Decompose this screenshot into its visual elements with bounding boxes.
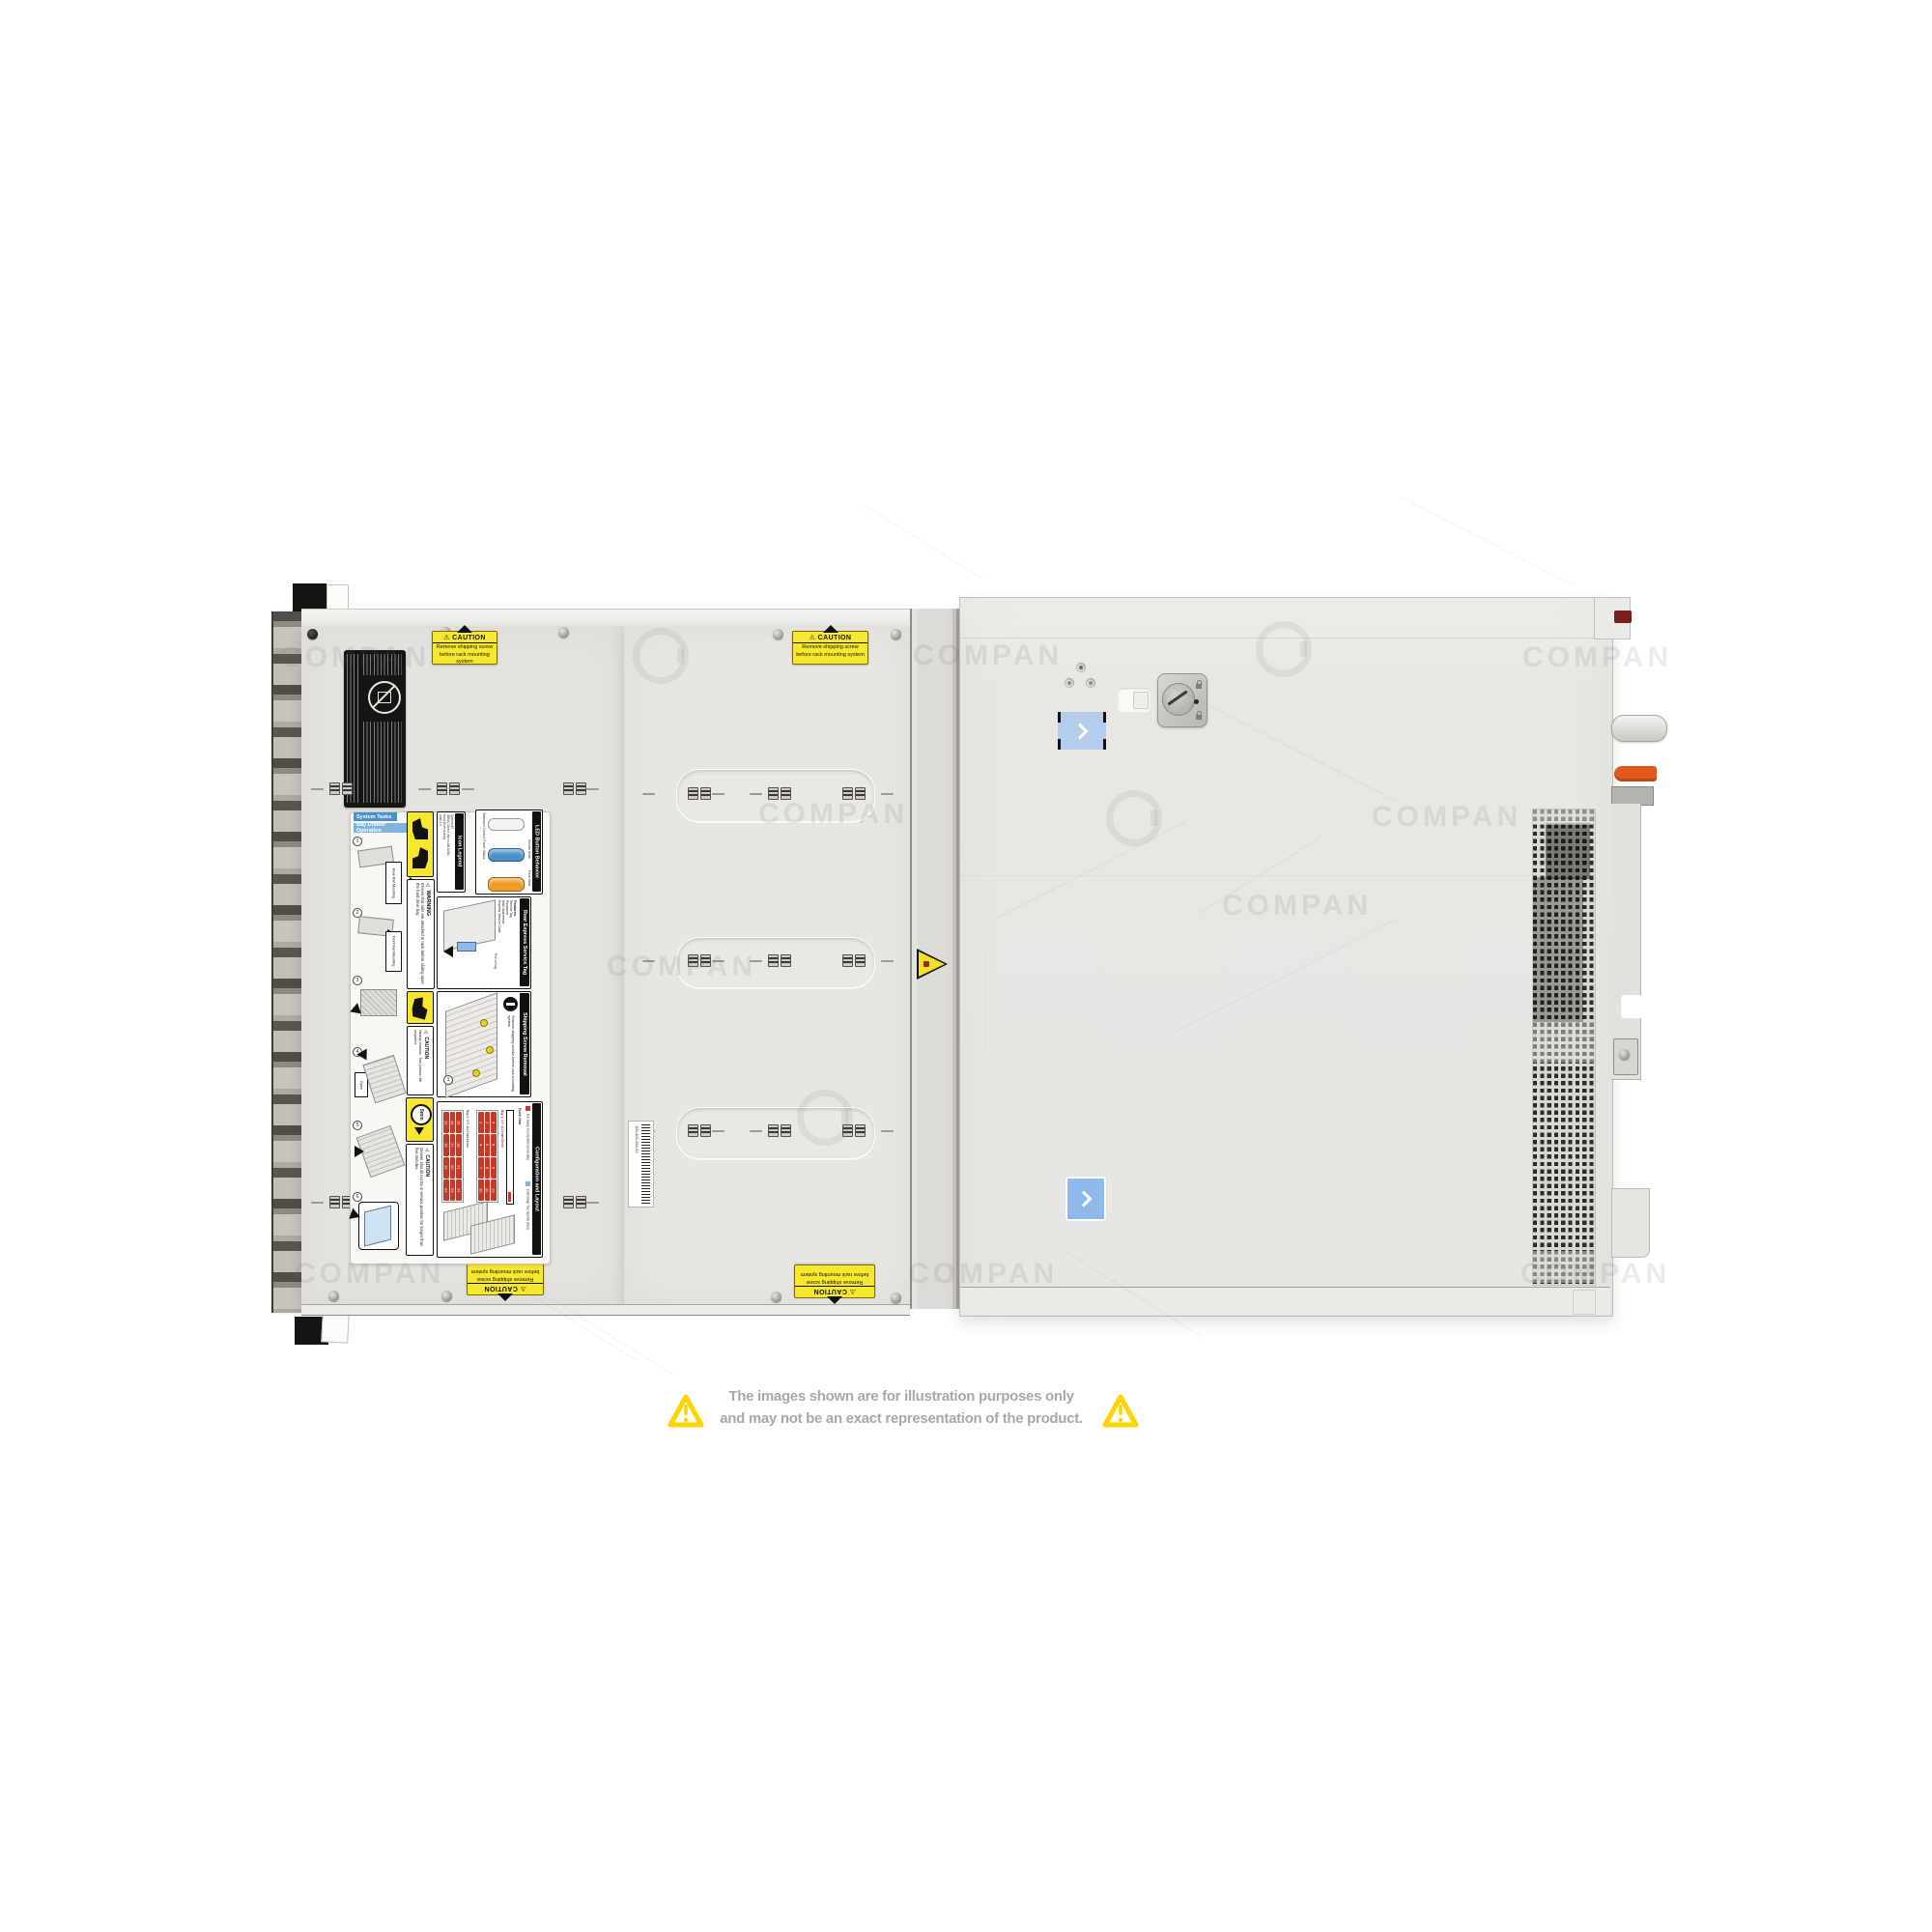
sticker-notch	[497, 1293, 513, 1301]
lid-bottom-strip	[960, 1287, 1610, 1315]
vent-mark	[462, 788, 474, 790]
chevron-right-icon	[1076, 1191, 1093, 1207]
lid-latch-dial	[1162, 683, 1195, 716]
sticker-notch	[827, 1296, 842, 1304]
warning-text: Ensure that rails are attached to rack b…	[415, 883, 425, 985]
repeat-item: 16	[443, 1134, 449, 1155]
hinge-warning-marks	[923, 961, 929, 967]
barcode-label: 100-400-294-03	[628, 1121, 654, 1207]
caution-line: before rack mounting system	[433, 651, 497, 666]
stop-icon	[503, 997, 518, 1011]
rack-ear-top-left	[293, 583, 327, 611]
shipping-screw-box: Shipping Screw Removal Remove shipping s…	[437, 991, 531, 1097]
repeat-item: 24	[456, 1179, 462, 1201]
repeat-item: 21	[456, 1157, 462, 1179]
touchpoint-corner-mark	[1103, 739, 1106, 750]
led-bar-blank	[488, 818, 525, 831]
repeat-item: 22	[443, 1179, 449, 1201]
label-step-2: 2 Front Rail Mounting	[353, 908, 403, 972]
screw	[891, 1293, 901, 1303]
label-step-1: 1 Rear Rail Mounting	[353, 837, 403, 904]
step-number: 1	[443, 1075, 453, 1085]
step-number: 1	[353, 837, 362, 846]
chevron-right-icon	[1072, 723, 1089, 739]
caution-line: Remove shipping screw	[795, 1278, 874, 1286]
repeat-item: MAC Addresses	[501, 900, 505, 985]
caution-line: before rack mounting system	[468, 1267, 543, 1275]
disclaimer-line-2: and may not be an exact representation o…	[660, 1407, 1143, 1430]
chassis-top-rail	[301, 609, 956, 628]
arrow	[443, 946, 453, 957]
screw	[328, 1291, 339, 1301]
caution-lift-text: Heavy chassis. Two person lift required.	[413, 1030, 423, 1092]
repeat-item: 1	[478, 1112, 484, 1133]
touchpoint-corner-mark	[1103, 712, 1106, 723]
shipping-screw-dot	[486, 1046, 494, 1054]
repeat-item: 5	[485, 1134, 491, 1155]
vent-mark	[750, 793, 762, 795]
shipping-header: Shipping Screw Removal	[520, 993, 529, 1094]
vent-mark	[586, 1202, 599, 1204]
watermark-text: COMPAN	[1372, 801, 1521, 834]
lock-icon	[1196, 715, 1202, 720]
repeat-item: 17	[450, 1134, 456, 1155]
led-behavior-header: LED Button Behavior	[532, 811, 541, 892]
tip-hazard-pictogram	[407, 811, 434, 877]
bay2-label: Bay 2: 3.5" x12 Hard Drives	[463, 1110, 469, 1199]
step-label: Front Rail Mounting	[385, 931, 402, 972]
service-tag-pull	[457, 942, 476, 952]
vent-mark	[881, 960, 894, 962]
vent-mark	[311, 1202, 324, 1204]
vent-mark	[418, 788, 431, 790]
vent-mark	[329, 782, 353, 795]
caution-line: Remove shipping screw	[468, 1275, 543, 1283]
service-label-tab-system-tasks: System Tasks	[354, 812, 397, 821]
vent-mark	[688, 787, 711, 800]
barcode-stripes	[641, 1124, 650, 1204]
screw	[891, 629, 901, 639]
led-normal-label: Normal State	[525, 839, 531, 868]
timer-box: 5min	[406, 1097, 434, 1142]
vent-mark	[311, 788, 324, 790]
front-panel-outline	[506, 1110, 514, 1205]
front-view-label: Front View	[515, 1108, 522, 1141]
touchpoint-sticker-upper	[1058, 712, 1106, 750]
vent-mark	[586, 788, 599, 790]
lid-hole-top	[1076, 663, 1086, 672]
repeat-item: 2	[485, 1112, 491, 1133]
shipping-screw-dot	[472, 1069, 480, 1077]
watermark-logo-icon	[633, 628, 689, 684]
repeat-item: 10	[478, 1179, 484, 1201]
vent-mark	[712, 793, 724, 795]
screw	[558, 627, 569, 638]
repeat-item: Password	[505, 900, 509, 985]
vent-mark	[881, 793, 894, 795]
cover-right-lid	[959, 597, 1613, 1317]
watermark-logo-icon	[1106, 790, 1162, 846]
label-step-3: 3	[353, 976, 403, 1043]
vent-mark	[842, 954, 866, 967]
rear-tag-header: Rear Express Service Tag	[520, 898, 529, 986]
touchpoint-corner-mark	[1058, 739, 1061, 750]
repeat-item: 4	[478, 1134, 484, 1155]
vent-shade-light	[1533, 810, 1593, 825]
icon-legend-items: System IDiDRAC Direct (Micro-AB USB)Hard…	[440, 814, 454, 890]
step-number: 3	[353, 976, 362, 985]
screw	[771, 1292, 781, 1302]
rear-foot	[1611, 1188, 1650, 1258]
step-label: Rear Rail Mounting	[385, 862, 402, 904]
caution-line: Remove shipping screw	[433, 643, 497, 651]
caution-sticker-top-left: ⚠ CAUTION Remove shipping screw before r…	[432, 631, 497, 665]
repeat-item: 3	[491, 1112, 497, 1133]
watermark-text: COMPAN	[295, 1258, 444, 1291]
caution-title: ⚠ CAUTION	[793, 632, 867, 643]
repeat-item: iDRAC Direct (Micro-AB USB)	[446, 814, 450, 890]
pinch-hazard-pictogram	[407, 991, 434, 1024]
caution-drawer-text: Drawer should not be in service position…	[414, 1148, 424, 1252]
caution-line: before rack mounting system	[795, 1270, 874, 1278]
watermark-text: COMPAN	[607, 951, 756, 983]
lid-fold-line-mid	[960, 875, 1530, 876]
led-fault-label: Fault State	[525, 870, 531, 894]
configuration-box: Configuration and Layout Hot Swap Touchp…	[437, 1101, 543, 1258]
service-label-tab-bay-drawer: Bay Drawer Operation	[354, 823, 409, 833]
repeat-item: 11	[485, 1179, 491, 1201]
rear-tag-features: Service TagPasswordMAC AddressesExpress …	[497, 900, 513, 985]
repeat-item: Service Tag	[509, 900, 513, 985]
rear-metal-latch	[1611, 786, 1654, 806]
repeat-item: 6	[491, 1134, 497, 1155]
repeat-item: 15	[456, 1112, 462, 1133]
rear-notch	[1621, 995, 1642, 1018]
chassis-bottom-rail	[301, 1304, 910, 1316]
barcode-number: 100-400-294-03	[631, 1125, 639, 1203]
watermark-text: COMPAN	[913, 639, 1063, 672]
watermark-text: COMPAN	[908, 1258, 1058, 1291]
rack-ear-bottom-tag	[321, 1313, 350, 1343]
rear-tag-features-label: Features:	[513, 900, 517, 985]
timer-label: 5min	[418, 1109, 424, 1121]
caution-sticker-bottom-middle: ⚠ CAUTION Remove shipping screw before r…	[794, 1264, 875, 1298]
screw	[307, 629, 318, 639]
warning-title: ⚠ WARNING	[425, 883, 431, 985]
repeat-item: System ID	[450, 814, 454, 890]
repeat-item: 7	[478, 1157, 484, 1179]
repeat-item: USB 2.0	[439, 814, 442, 890]
step-number: 5	[353, 1121, 362, 1130]
lid-release-slider-knob	[1133, 692, 1149, 709]
legend-cold: Cold Swap Touchpoints (blue)	[526, 1189, 530, 1230]
icon-legend-header: Icon Legend	[455, 813, 464, 890]
regulatory-text-lines	[347, 654, 360, 803]
vent-mark	[768, 1124, 791, 1137]
rear-red-latch	[1614, 611, 1632, 623]
label-step-6: 6	[353, 1192, 403, 1254]
led-bar-fault	[488, 877, 525, 892]
bay1-label: Bay 1: 3.5" x12 Hard Drives	[497, 1110, 504, 1199]
vent-shade-dark	[1533, 877, 1583, 1022]
step-number: 6	[353, 1192, 362, 1202]
vent-mark	[881, 1130, 894, 1132]
watermark-text: COMPAN	[1522, 641, 1672, 674]
watermark-text: COMPAN	[758, 798, 908, 831]
rear-thumbscrew	[1619, 1049, 1630, 1060]
shipping-text: Remove shipping screws before rack mount…	[501, 1015, 515, 1093]
shipping-illustration	[445, 992, 497, 1098]
unlock-icon	[1196, 684, 1202, 689]
caution-sticker-top-middle: ⚠ CAUTION Remove shipping screw before r…	[792, 631, 868, 665]
caution-drawer-box: ⚠ CAUTION Drawer should not be in servic…	[406, 1144, 434, 1256]
watermark-logo-icon	[797, 1090, 853, 1146]
lid-hole-right	[1086, 678, 1095, 688]
sticker-notch	[457, 625, 472, 633]
shipping-screw-dot	[480, 1019, 488, 1027]
caution-lift-title: ⚠ CAUTION	[423, 1030, 429, 1092]
vent-mark	[750, 1130, 762, 1132]
vent-mark	[768, 954, 791, 967]
repeat-item: 18	[456, 1134, 462, 1155]
rear-orange-lever	[1614, 766, 1657, 781]
regulatory-text-lines	[363, 722, 402, 803]
vent-mark	[563, 782, 586, 795]
repeat-item: 20	[450, 1157, 456, 1179]
repeat-item: 13	[443, 1112, 449, 1133]
label-step-4: 4 Open	[353, 1047, 403, 1117]
repeat-item: 12	[491, 1179, 497, 1201]
repeat-item: 14	[450, 1112, 456, 1133]
bay2-drive-grid: 131415161718192021222324	[441, 1110, 464, 1203]
rear-handle	[1611, 715, 1667, 742]
touchpoint-corner-mark	[1058, 712, 1061, 723]
repeat-item: 19	[443, 1157, 449, 1179]
vent-mark	[712, 1130, 724, 1132]
caution-line: before rack mounting system	[793, 651, 867, 659]
lid-hole-left	[1065, 678, 1074, 688]
touchpoint-sticker-lower	[1065, 1177, 1106, 1221]
vent-mark	[437, 782, 460, 795]
watermark-text: COMPAN	[280, 641, 430, 674]
sticker-notch	[823, 625, 838, 633]
watermark-line	[861, 502, 984, 580]
vent-shade-dark	[1546, 823, 1590, 879]
no-tip-icon	[368, 681, 401, 714]
repeat-item: Express Service Code	[497, 900, 501, 985]
led-bar-normal	[488, 848, 525, 862]
vent-mark	[688, 1124, 711, 1137]
warning-box: ⚠ WARNING Ensure that rails are attached…	[407, 879, 435, 989]
front-drive-handles	[271, 611, 303, 1313]
watermark-text: COMPAN	[1222, 890, 1372, 923]
product-photo-canvas: ⚠ CAUTION Remove shipping screw before r…	[0, 0, 1932, 1932]
caution-drawer-title: ⚠ CAUTION	[424, 1148, 430, 1252]
icon-legend-box: Icon Legend System IDiDRAC Direct (Micro…	[437, 811, 466, 893]
cold-swap-legend-square	[526, 1181, 530, 1186]
lid-bottom-notch	[1573, 1290, 1596, 1315]
caution-lift-box: ⚠ CAUTION Heavy chassis. Two person lift…	[407, 1026, 434, 1095]
watermark-logo-icon	[1256, 621, 1312, 677]
bay1-drive-grid: 123456789101112	[476, 1110, 498, 1203]
led-behavior-box: LED Button Behavior Standard Control Pan…	[475, 810, 543, 895]
repeat-item: 9	[491, 1157, 497, 1179]
vent-shade-light	[1533, 1022, 1593, 1063]
configuration-header: Configuration and Layout	[532, 1103, 541, 1255]
repeat-item: 8	[485, 1157, 491, 1179]
lid-emboss-line	[1402, 497, 1575, 586]
watermark-text: COMPAN	[1520, 1258, 1670, 1291]
caution-sticker-bottom-left: ⚠ CAUTION Remove shipping screw before r…	[467, 1263, 544, 1295]
rear-tag-box: Rear Express Service Tag Pull out tag Fe…	[437, 896, 531, 989]
label-step-5: 5	[353, 1121, 403, 1188]
vent-mark	[642, 793, 655, 795]
disclaimer-line-1: The images shown are for illustration pu…	[660, 1385, 1143, 1407]
led-subtitle: Standard Control Panel Status	[478, 812, 486, 892]
screw	[441, 1291, 452, 1301]
caution-title: ⚠ CAUTION	[433, 632, 497, 643]
legend-hot: Hot Swap Touchpoints (terracotta)	[526, 1114, 530, 1160]
hot-swap-legend-square	[526, 1106, 530, 1111]
screw	[773, 629, 783, 639]
repeat-item: 23	[450, 1179, 456, 1201]
caution-line: Remove shipping screw	[793, 643, 867, 651]
vent-mark	[563, 1196, 586, 1208]
